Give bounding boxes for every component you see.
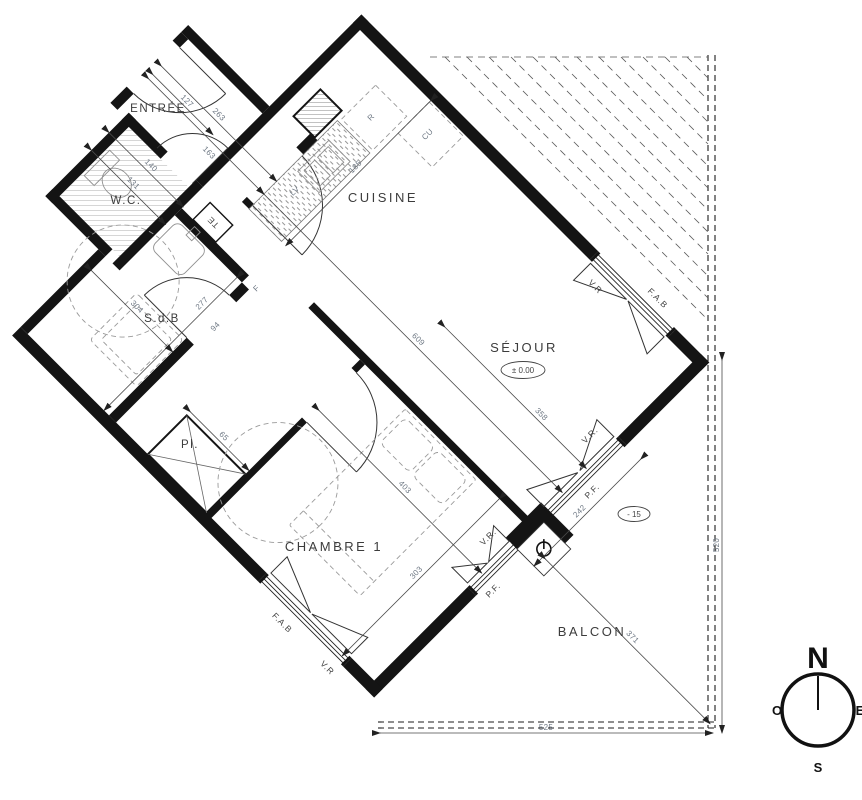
compass-east: E bbox=[856, 703, 862, 718]
dim-sdb-d: 277 bbox=[194, 295, 211, 312]
dim-balcon-diag: 371 bbox=[624, 629, 641, 646]
compass-rose: N E O S bbox=[772, 642, 862, 775]
dim-main: 609 bbox=[410, 331, 427, 348]
dim-facade: 242 bbox=[571, 503, 588, 520]
dim-chambre-w: 303 bbox=[408, 564, 425, 581]
label-sejour: SÉJOUR bbox=[490, 340, 558, 355]
compass-south: S bbox=[814, 760, 823, 775]
dim-sdb-w: 304 bbox=[129, 299, 146, 316]
label-wc: W.C. bbox=[111, 195, 142, 207]
label-balcon: BALCON bbox=[558, 624, 626, 639]
label-cuisine: CUISINE bbox=[348, 190, 418, 205]
dim-balcon-w: 525 bbox=[539, 723, 553, 732]
wc-floor-hatch bbox=[59, 127, 188, 256]
door-tag-f: F bbox=[251, 283, 261, 293]
window-sw-fab bbox=[258, 555, 370, 667]
level-marker-sejour: ± 0.00 bbox=[501, 362, 545, 379]
se-chambre-window-label: P.F. bbox=[483, 581, 502, 600]
dim-chambre-l: 403 bbox=[397, 479, 414, 496]
dim-entree-ext: 263 bbox=[211, 106, 228, 123]
label-placard: Pl. bbox=[181, 439, 199, 451]
sw-shutter-label: V.R bbox=[318, 659, 336, 677]
label-entree: ENTRÉE bbox=[130, 102, 186, 115]
label-sdb: S.d.B bbox=[144, 313, 180, 325]
level-sejour-value: ± 0.00 bbox=[512, 366, 535, 375]
compass-north: N bbox=[807, 642, 829, 675]
dim-hall: 163 bbox=[201, 144, 218, 161]
dim-balcon-d: 520 bbox=[712, 538, 721, 552]
compass-west: O bbox=[772, 703, 782, 718]
se-sejour-window-label: P.F. bbox=[582, 482, 601, 501]
walls bbox=[0, 0, 728, 716]
se-chambre-shutter-label: V.R. bbox=[478, 527, 498, 547]
sw-window-label: F.A.B bbox=[270, 611, 294, 635]
floor-plan-page: TE 263 127 163 bbox=[0, 0, 862, 800]
dim-sejour: 358 bbox=[533, 406, 550, 423]
label-chambre: CHAMBRE 1 bbox=[285, 539, 383, 554]
dim-sdb-door: 94 bbox=[209, 320, 222, 333]
apartment-plan-group: TE 263 127 163 bbox=[0, 0, 862, 800]
upper-floor-hatch bbox=[430, 57, 708, 320]
ne-shutter-label: V.R bbox=[586, 277, 604, 295]
floor-plan-drawing: TE 263 127 163 bbox=[0, 0, 862, 800]
level-balcon-value: - 15 bbox=[627, 510, 641, 519]
fridge-label: R bbox=[366, 112, 377, 123]
level-marker-balcon: - 15 bbox=[618, 507, 650, 522]
cooktop-label: CU bbox=[420, 127, 435, 142]
ne-window-label: F.A.B bbox=[646, 286, 670, 310]
